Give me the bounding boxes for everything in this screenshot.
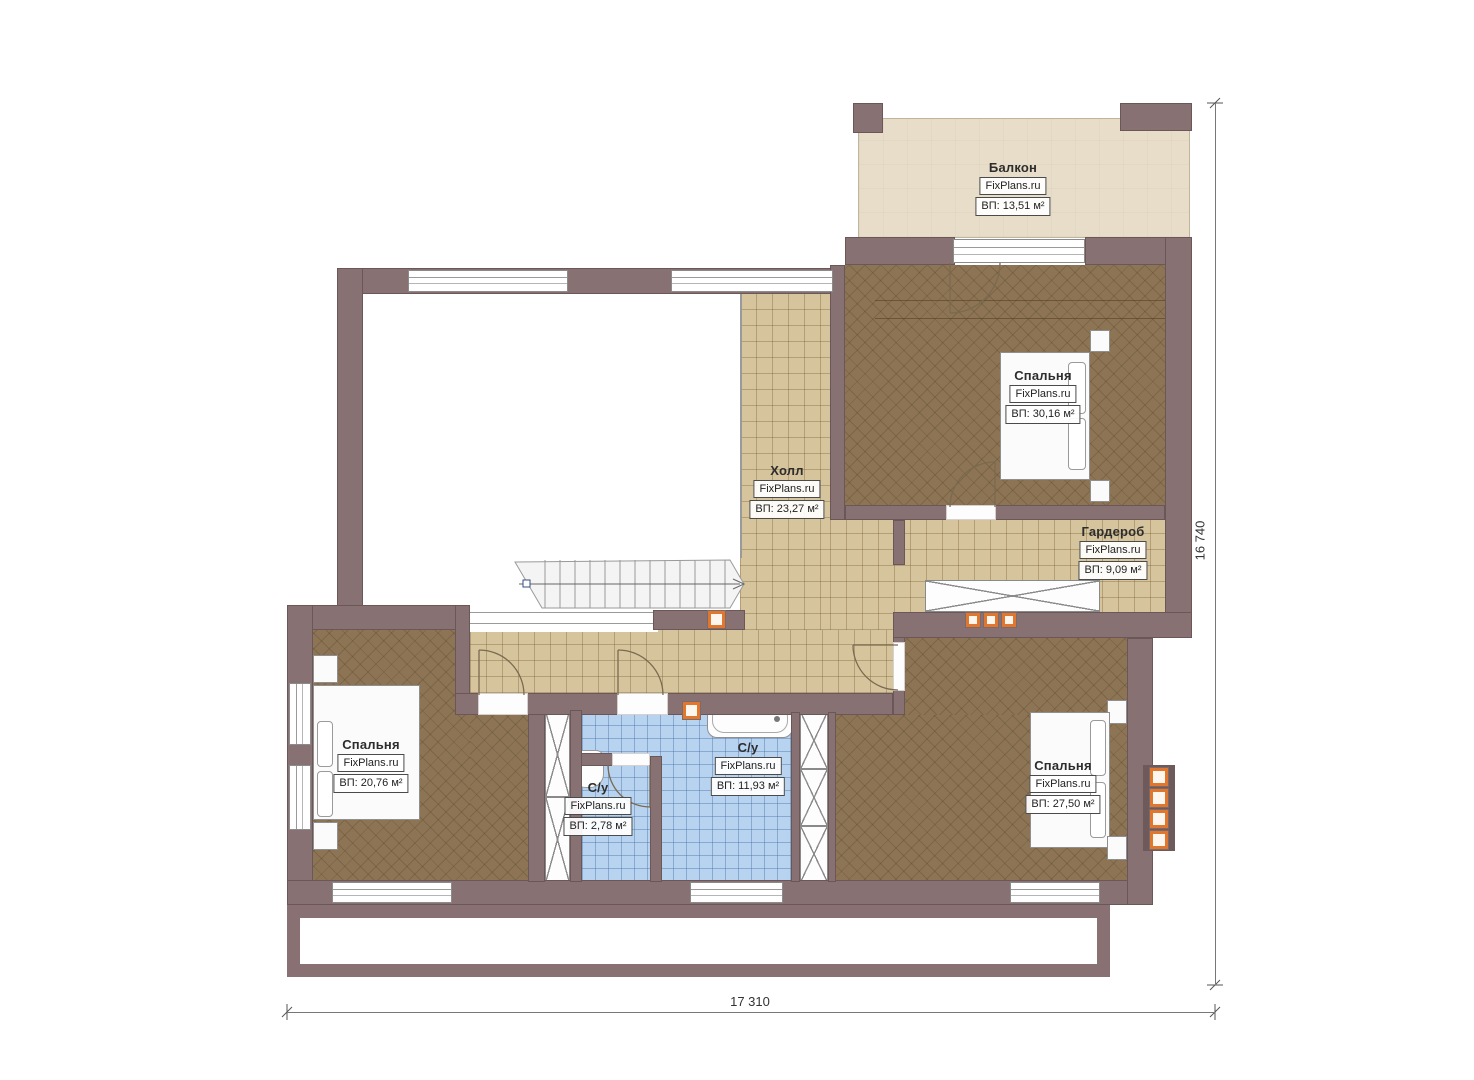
area-label: ВП: 13,51 м² xyxy=(975,197,1050,215)
bed-left-pillow xyxy=(317,721,333,767)
dimension-line-horizontal xyxy=(287,1012,1215,1013)
chimney-vent xyxy=(1150,831,1168,849)
void-room-floor xyxy=(363,294,740,622)
dimension-label-width: 17 310 xyxy=(705,994,795,1009)
room-name: С/у xyxy=(588,780,609,795)
room-name: Гардероб xyxy=(1081,524,1144,539)
room-name: Холл xyxy=(770,463,803,478)
wall xyxy=(650,756,662,882)
wall xyxy=(830,265,845,520)
room-name: Спальня xyxy=(1034,758,1092,773)
chimney-vent xyxy=(1150,810,1168,828)
area-label: ВП: 11,93 м² xyxy=(711,777,785,795)
chimney-vent xyxy=(1150,789,1168,807)
utility-marker xyxy=(708,611,725,628)
wall xyxy=(893,612,1192,638)
terrace-outline xyxy=(287,905,1110,977)
room-label-balcony: Балкон FixPlans.ru ВП: 13,51 м² xyxy=(975,160,1050,216)
nightstand xyxy=(1090,330,1110,352)
room-label-wardrobe: Гардероб FixPlans.ru ВП: 9,09 м² xyxy=(1078,524,1147,580)
area-label: ВП: 27,50 м² xyxy=(1025,795,1100,813)
wall xyxy=(528,693,545,882)
nightstand xyxy=(313,655,338,683)
brand-label: FixPlans.ru xyxy=(1029,775,1096,793)
utility-marker xyxy=(1002,613,1016,627)
brand-label: FixPlans.ru xyxy=(1009,385,1076,403)
brand-label: FixPlans.ru xyxy=(337,754,404,772)
utility-marker xyxy=(984,613,998,627)
wall xyxy=(845,237,955,265)
room-label-bedroom-top: Спальня FixPlans.ru ВП: 30,16 м² xyxy=(1005,368,1080,424)
wall xyxy=(287,605,313,905)
area-label: ВП: 30,16 м² xyxy=(1005,405,1080,423)
window xyxy=(289,683,311,745)
room-label-bath-small: С/у FixPlans.ru ВП: 2,78 м² xyxy=(563,780,632,836)
nightstand xyxy=(1107,836,1127,860)
bathtub-faucet xyxy=(774,716,780,722)
hall-floor-vertical xyxy=(740,294,830,630)
window xyxy=(289,765,311,830)
brand-label: FixPlans.ru xyxy=(714,757,781,775)
room-name: Балкон xyxy=(989,160,1037,175)
balcony-pillar xyxy=(853,103,883,133)
window xyxy=(690,882,783,903)
room-label-bedroom-right: Спальня FixPlans.ru ВП: 27,50 м² xyxy=(1025,758,1100,814)
bed-left-pillow xyxy=(317,771,333,817)
dresser-band xyxy=(875,300,1165,319)
area-label: ВП: 2,78 м² xyxy=(563,817,632,835)
nightstand xyxy=(313,822,338,850)
wall xyxy=(893,520,905,565)
brand-label: FixPlans.ru xyxy=(1079,541,1146,559)
bedroom-left-floor-ext xyxy=(470,715,530,882)
floor-plan: Балкон FixPlans.ru ВП: 13,51 м² Спальня … xyxy=(0,0,1474,1080)
wall xyxy=(653,610,745,630)
landing-line-2 xyxy=(470,623,658,624)
dimension-label-height: 16 740 xyxy=(1193,501,1208,581)
wall xyxy=(845,505,1165,520)
window xyxy=(1010,882,1100,903)
room-label-bath-main: С/у FixPlans.ru ВП: 11,93 м² xyxy=(711,740,785,796)
chimney-vent xyxy=(1150,768,1168,786)
wall xyxy=(828,712,836,882)
door-opening xyxy=(894,643,904,690)
brand-label: FixPlans.ru xyxy=(753,480,820,498)
landing-line-1 xyxy=(470,612,658,613)
window xyxy=(408,270,568,292)
utility-marker xyxy=(966,613,980,627)
nightstand xyxy=(1107,700,1127,724)
utility-marker xyxy=(683,702,700,719)
hall-floor-horizontal xyxy=(470,630,893,693)
shaft-right xyxy=(800,712,828,769)
door-opening xyxy=(613,754,649,765)
door-opening xyxy=(618,694,667,714)
area-label: ВП: 23,27 м² xyxy=(749,500,824,518)
wall xyxy=(337,268,363,622)
brand-label: FixPlans.ru xyxy=(979,177,1046,195)
void-edge-line xyxy=(740,294,742,558)
room-label-bedroom-left: Спальня FixPlans.ru ВП: 20,76 м² xyxy=(333,737,408,793)
shaft-right xyxy=(800,769,828,826)
dimension-line-vertical xyxy=(1215,103,1216,985)
room-name: Спальня xyxy=(1014,368,1072,383)
door-opening xyxy=(947,506,995,519)
wall xyxy=(287,605,470,630)
wardrobe-cabinet xyxy=(925,580,1100,612)
stair-landing xyxy=(470,606,658,632)
area-label: ВП: 9,09 м² xyxy=(1078,561,1147,579)
wall xyxy=(1165,237,1192,638)
door-opening xyxy=(479,694,527,714)
room-name: С/у xyxy=(738,740,759,755)
window xyxy=(332,882,452,903)
room-label-hall: Холл FixPlans.ru ВП: 23,27 м² xyxy=(749,463,824,519)
wall xyxy=(791,712,800,882)
balcony-wall xyxy=(1120,103,1192,131)
area-label: ВП: 20,76 м² xyxy=(333,774,408,792)
brand-label: FixPlans.ru xyxy=(564,797,631,815)
nightstand xyxy=(1090,480,1110,502)
room-name: Спальня xyxy=(342,737,400,752)
bed-top-pillow xyxy=(1068,418,1086,470)
shaft-right xyxy=(800,826,828,882)
balcony-door-sill xyxy=(953,239,1085,263)
window xyxy=(671,270,833,292)
